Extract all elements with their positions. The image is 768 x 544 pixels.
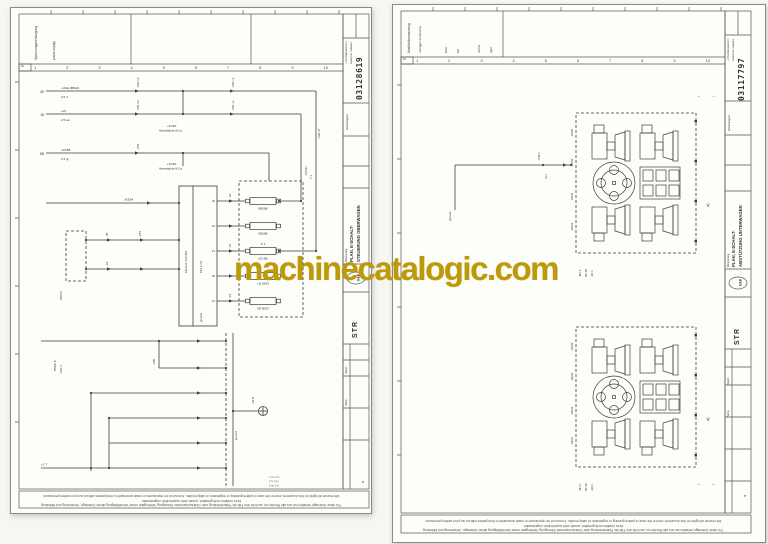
wire-label: +1 T [41,463,47,467]
fineprint-en: We reserve all rights for this document,… [41,494,341,498]
customer-note-de: +) Kundenwunsch [727,39,730,61]
assembly-tag: 3R 4A [584,483,588,491]
header-function-en: outrigger monitoring [419,26,422,53]
copyright-fineprint: Für diese Unterlage behalten wir uns all… [423,516,723,532]
tick-label: 4 [512,58,514,63]
tick-label: 5 [545,58,547,63]
wire-label: -X2 [105,261,109,266]
module-label: Klemme 4 (K15)A [184,251,188,273]
assembly-tag: 3R 4A [584,269,588,277]
annotation: a) [705,417,710,421]
scanned-sheets-canvas: 30 15 58 +Ubat (B60A) 2.5 rt +15 2.5 sw … [0,0,768,544]
junction-box-label: +KVZF [167,124,177,128]
header-item-links: links [445,47,448,53]
pin-number: 12 [212,299,216,303]
sheet-code: STR [352,321,359,338]
junction-box-name: Abzweigdose (K) Lp [159,129,183,133]
wire-tag: -X1 [228,193,232,198]
bus-58-label: 58 [40,152,44,156]
wire-label: -X53 [138,231,142,237]
bus-58-wire: +15/58 [61,148,71,152]
field-name: Name [728,410,731,417]
fuse-label: 3R 5K53 [257,307,269,311]
tick-label: 2 [448,58,450,63]
tick-label: 7 [227,65,229,70]
header-function-de: Spannungsversorgung [35,26,38,60]
chevron-mark: ‹ [696,483,701,485]
customer-note-en: customer request [350,42,353,64]
bus-30-label: 30 [40,90,44,94]
terminal-label: (K30)A [125,198,134,202]
field-datum: Datum [346,367,349,374]
pin-number: 21 [212,249,216,253]
bus-58-gauge: 1.5 gr [61,157,69,161]
wiring-lines [41,91,316,486]
tick-label: 2 [66,65,68,70]
rotary-union-and-valve-grid [593,162,680,418]
junction-box-label: +KVZF [167,162,177,166]
drawing-number-label: Zeichnungsnr. [729,115,732,131]
tick-label: 8 [641,58,643,63]
wiring-lines [455,165,571,210]
header-item-rechts: rechts [478,45,481,53]
column-tick-band: 12345678910 [401,57,725,64]
fineprint-de: Für diese Unterlage behalten wir uns all… [423,523,723,532]
bus-15-label: 15 [40,113,44,117]
chevron-mark: › [711,95,716,97]
connector-label: -X53 12 [136,77,140,88]
relay-label: B550B [258,207,267,211]
tick-label: 1 [34,65,36,70]
header-item-left: left [457,49,460,53]
module-label: K15 3.3 V [199,261,203,273]
header-item-right: right [490,47,493,53]
drawing-number: 03117797 [738,58,746,101]
valve-pin-label: -X46/1 [570,436,574,445]
header-function-de: Abstützüberwachung [408,23,411,53]
valve-pin-label: -X46/4 [570,342,574,351]
drawing-title-line2: ABSTÜTZUNG UNTERWAGEN [739,205,743,267]
tick-label: 6 [577,58,579,63]
manufacturer-logo: O&K [739,278,743,286]
nr-cell-label: Nr [21,65,24,68]
drawing-number: 03128619 [356,57,364,100]
wire-label: B5WK E [53,360,57,371]
drawing-title-line1: PLAN, E-SCHALT- [732,230,736,267]
relay-label: K 2 [261,242,266,246]
solenoid-symbols [592,125,678,455]
junction-dots-and-arrows [542,120,697,457]
tick-label: 5 [163,65,165,70]
fineprint-en: We reserve all rights for this document,… [423,519,723,523]
junction-box-name: Abzweigdose (K) Lp [159,167,183,171]
copyright-fineprint: Für diese Unterlage behalten wir uns all… [41,492,341,507]
customer-note-de: +) Kundenwunsch [345,42,348,64]
chevron-mark: ‹ [711,483,716,485]
tick-label: 3 [480,58,482,63]
valve-pin-label: -X46/2 [570,406,574,415]
switch-label: -S58 02 [59,291,63,301]
nr-cell-label: Nr [403,58,406,61]
valve-pin-label: -X45/1 [570,222,574,231]
relay-label: B560B [258,232,267,236]
wire-tag: -X1 [228,293,232,298]
field-datum: Datum [728,378,731,385]
field-blatt: Bl. [745,494,748,497]
wire-label: -47B [152,359,156,365]
sheet-code: STR [734,328,741,345]
tick-label: 10 [324,65,328,70]
legend-line: 3 rt 4 ge [269,479,279,483]
annotation: a) [705,203,710,207]
wiring-labels: ground -X45.1 4×1 -X45/4 -X45/3 -X45/2 -… [448,95,743,491]
wire-label: +X26 1 [59,365,63,374]
pin-number: 32 [212,199,216,203]
chevron-mark: › [696,95,701,97]
assembly-tag: -M1 2 [578,269,582,277]
wire-label: -S5 [105,232,109,237]
bus-30-wire: +Ubat (B60A) [61,86,79,90]
connector-label: -X53 12 [136,100,140,111]
tick-label: 4 [130,65,132,70]
column-tick-band: 12345678910 [19,64,343,71]
tick-label: 10 [706,58,710,63]
drawing-number-label: Zeichnungsnr. [347,114,350,130]
assembly-tag: -M1 1 [578,483,582,491]
assembly-tag: -A6 2 [590,484,594,491]
tick-label: 7 [609,58,611,63]
fineprint-de: Für diese Unterlage behalten wir uns all… [41,498,341,507]
connector-label: -X53 [136,143,140,150]
valve-pin-label: -X45/3 [570,158,574,167]
tick-label: 9 [291,65,293,70]
pin-number: 31 [212,224,216,228]
legend-line: 5 gn 6 bl [269,483,279,487]
crossref-label: -X70/17 [304,166,308,176]
valve-pin-label: -X45/2 [570,192,574,201]
field-name: Name [346,399,349,406]
wire-size-label: 4×1 [544,174,548,179]
module-ground-label: ground [199,313,203,322]
bus-15-gauge: 2.5 sw [61,118,71,122]
site-watermark: machinecatalogic.com [234,250,558,288]
pin-number: 26 [212,274,216,278]
ground-bus-label: ground [234,431,238,440]
wire-tag: -X1 [228,243,232,248]
valve-pin-label: -X45/4 [570,128,574,137]
header-function-en: power supply [53,41,56,60]
tick-label: 9 [673,58,675,63]
bus-15-wire: +15 [61,109,66,113]
connector-label: -X45.1 [537,152,541,161]
connector-label: -X20.37 [317,128,321,139]
tick-label: 8 [259,65,261,70]
valve-assembly-boxes [576,113,696,467]
field-blatt: Bl. [363,480,366,483]
tick-label: 6 [195,65,197,70]
connector-label: -X53 +1 [231,100,235,111]
tick-label: 1 [416,58,418,63]
valve-pin-label: -X46/3 [570,372,574,381]
crossref-sheet: 7.1 [309,175,313,179]
connector-label: -X2 B [251,397,255,404]
legend-line: 1 sw 2 br [269,475,280,479]
customer-note-en: customer request [732,39,735,61]
connector-label: -X53 +1 [231,77,235,88]
assembly-tag: -A6 1 [590,270,594,277]
title-label: Benennung [728,254,731,267]
ground-label: ground [448,211,452,221]
tick-label: 3 [98,65,100,70]
bus-30-gauge: 2.5 rt [61,95,68,99]
